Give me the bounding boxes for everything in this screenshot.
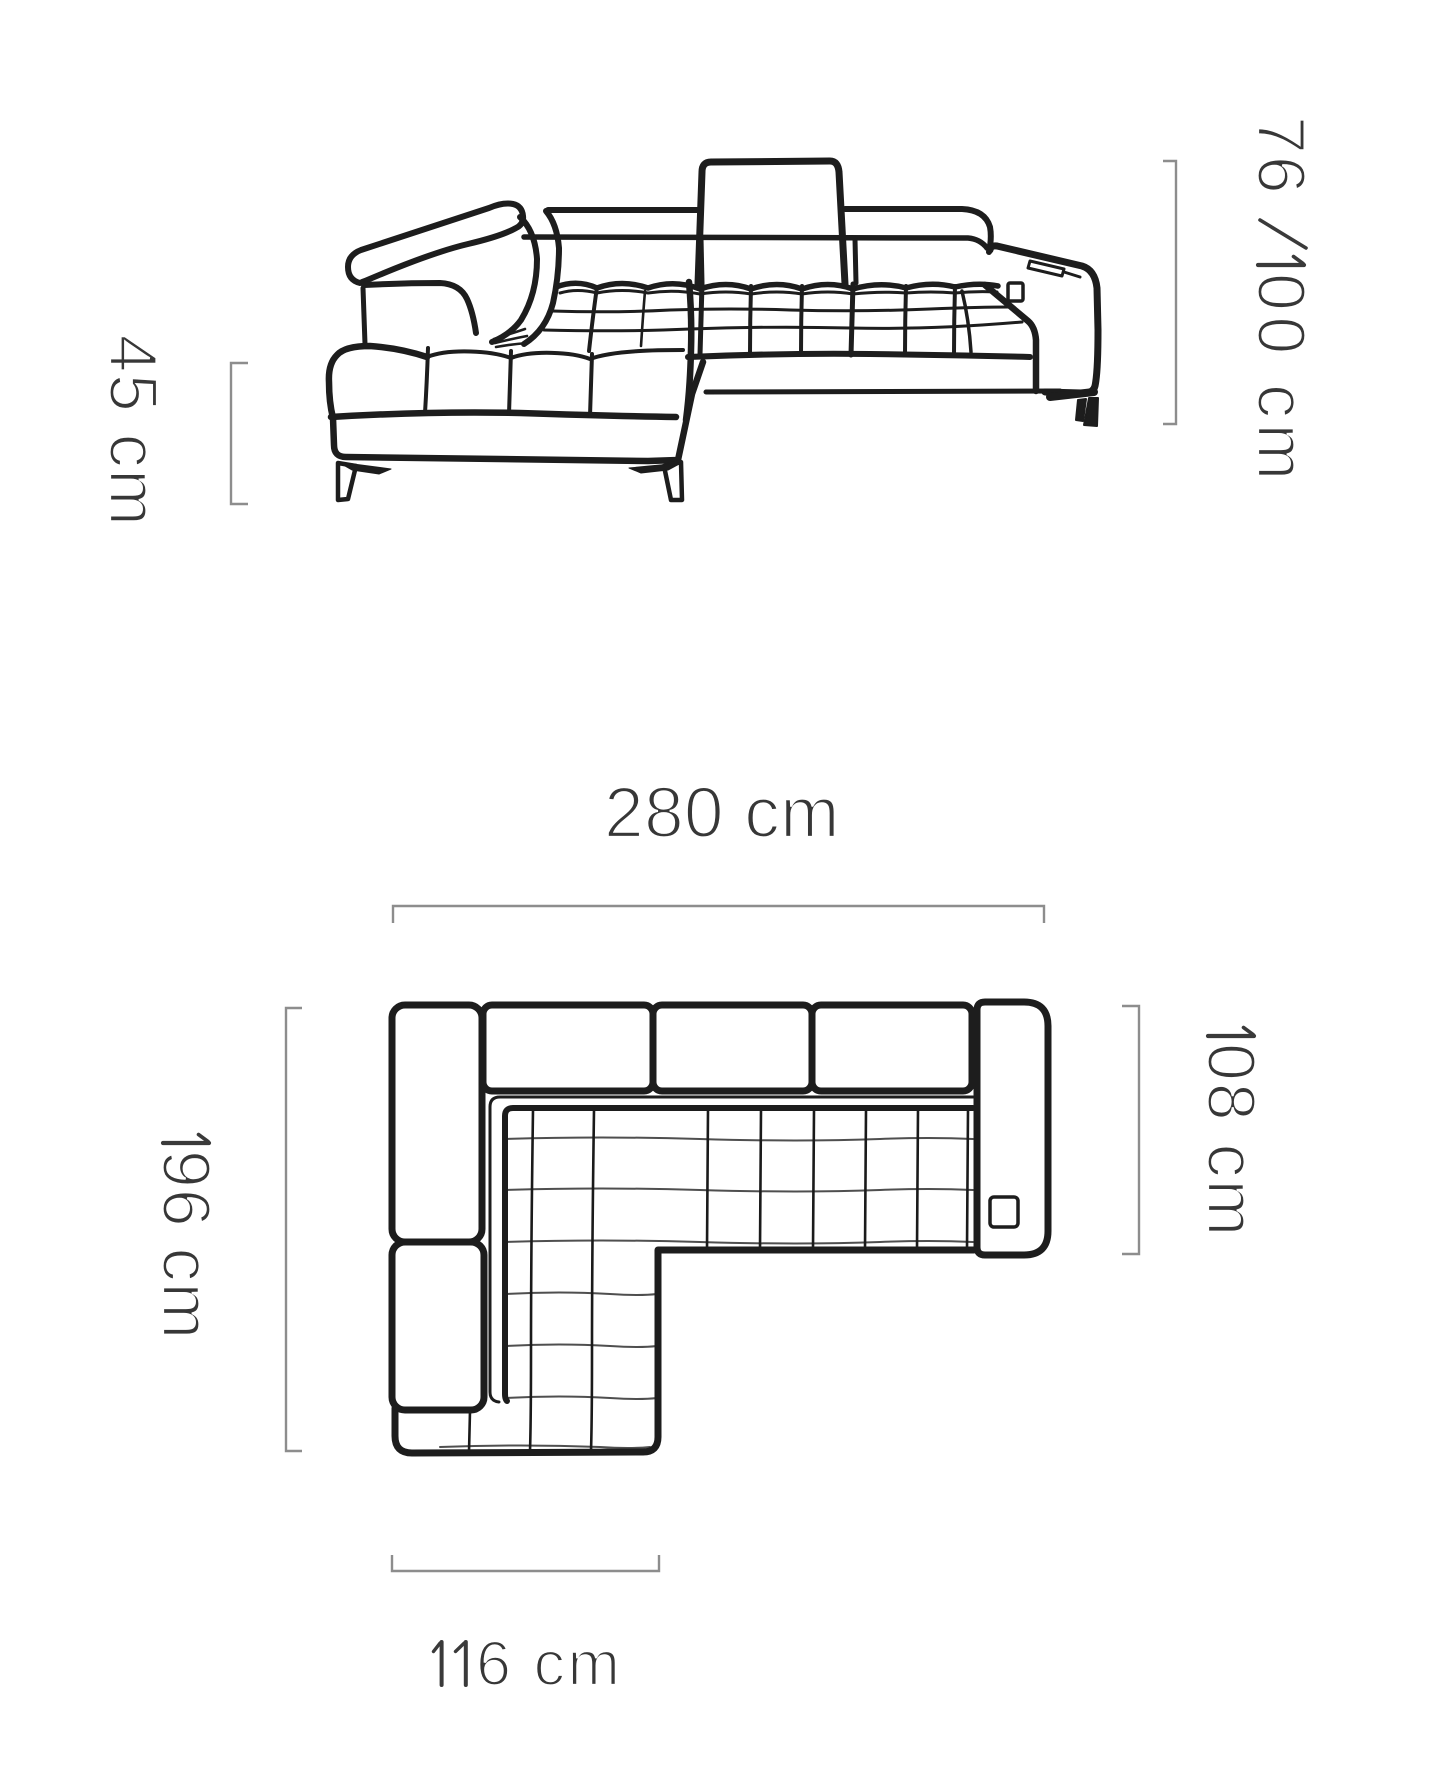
- svg-text:280 cm: 280 cm: [604, 774, 840, 853]
- svg-text:96 cm: 96 cm: [148, 1150, 224, 1340]
- svg-text:00 cm: 00 cm: [1243, 273, 1319, 486]
- svg-text:76: 76: [1243, 116, 1319, 196]
- svg-text:45 cm: 45 cm: [95, 335, 171, 528]
- svg-text:6 cm: 6 cm: [476, 1629, 623, 1699]
- svg-text:08 cm: 08 cm: [1193, 1043, 1269, 1238]
